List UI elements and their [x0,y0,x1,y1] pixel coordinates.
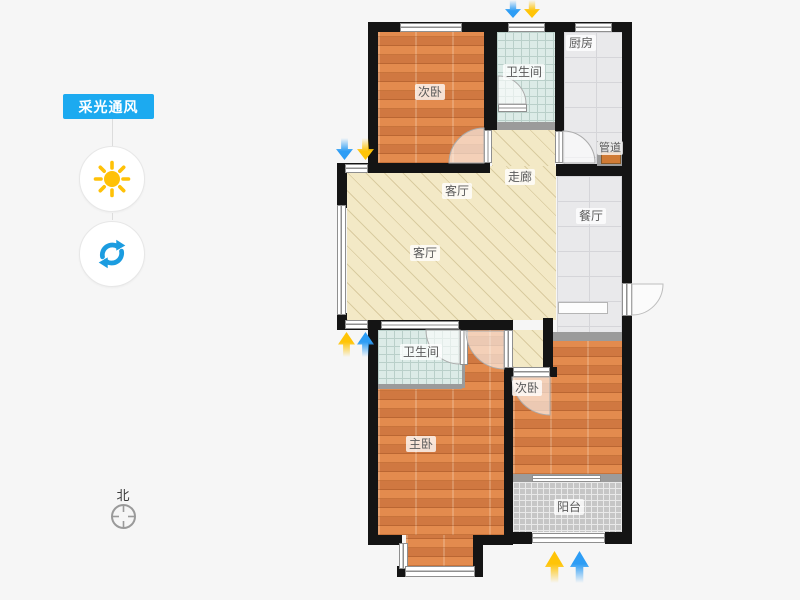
room-label-bedroom-top: 次卧 [415,84,445,100]
door-swing-arcs [0,0,800,600]
room-label-bathroom-top: 卫生间 [503,64,545,80]
room-label-bathroom-lower: 卫生间 [400,344,442,360]
room-label-dining: 餐厅 [576,208,606,224]
room-label-living-upper: 客厅 [442,183,472,199]
room-label-master-bedroom: 主卧 [406,436,436,452]
room-label-hallway: 走廊 [505,169,535,185]
floorplan-canvas: 次卧 卫生间 厨房 管道 走廊 客厅 客厅 餐厅 卫生间 主卧 次卧 阳台 [0,0,800,600]
room-label-duct: 管道 [597,141,623,155]
room-label-bedroom-bottom: 次卧 [512,380,542,396]
room-label-living: 客厅 [410,245,440,261]
room-label-balcony: 阳台 [554,499,584,515]
room-label-kitchen: 厨房 [566,35,596,51]
